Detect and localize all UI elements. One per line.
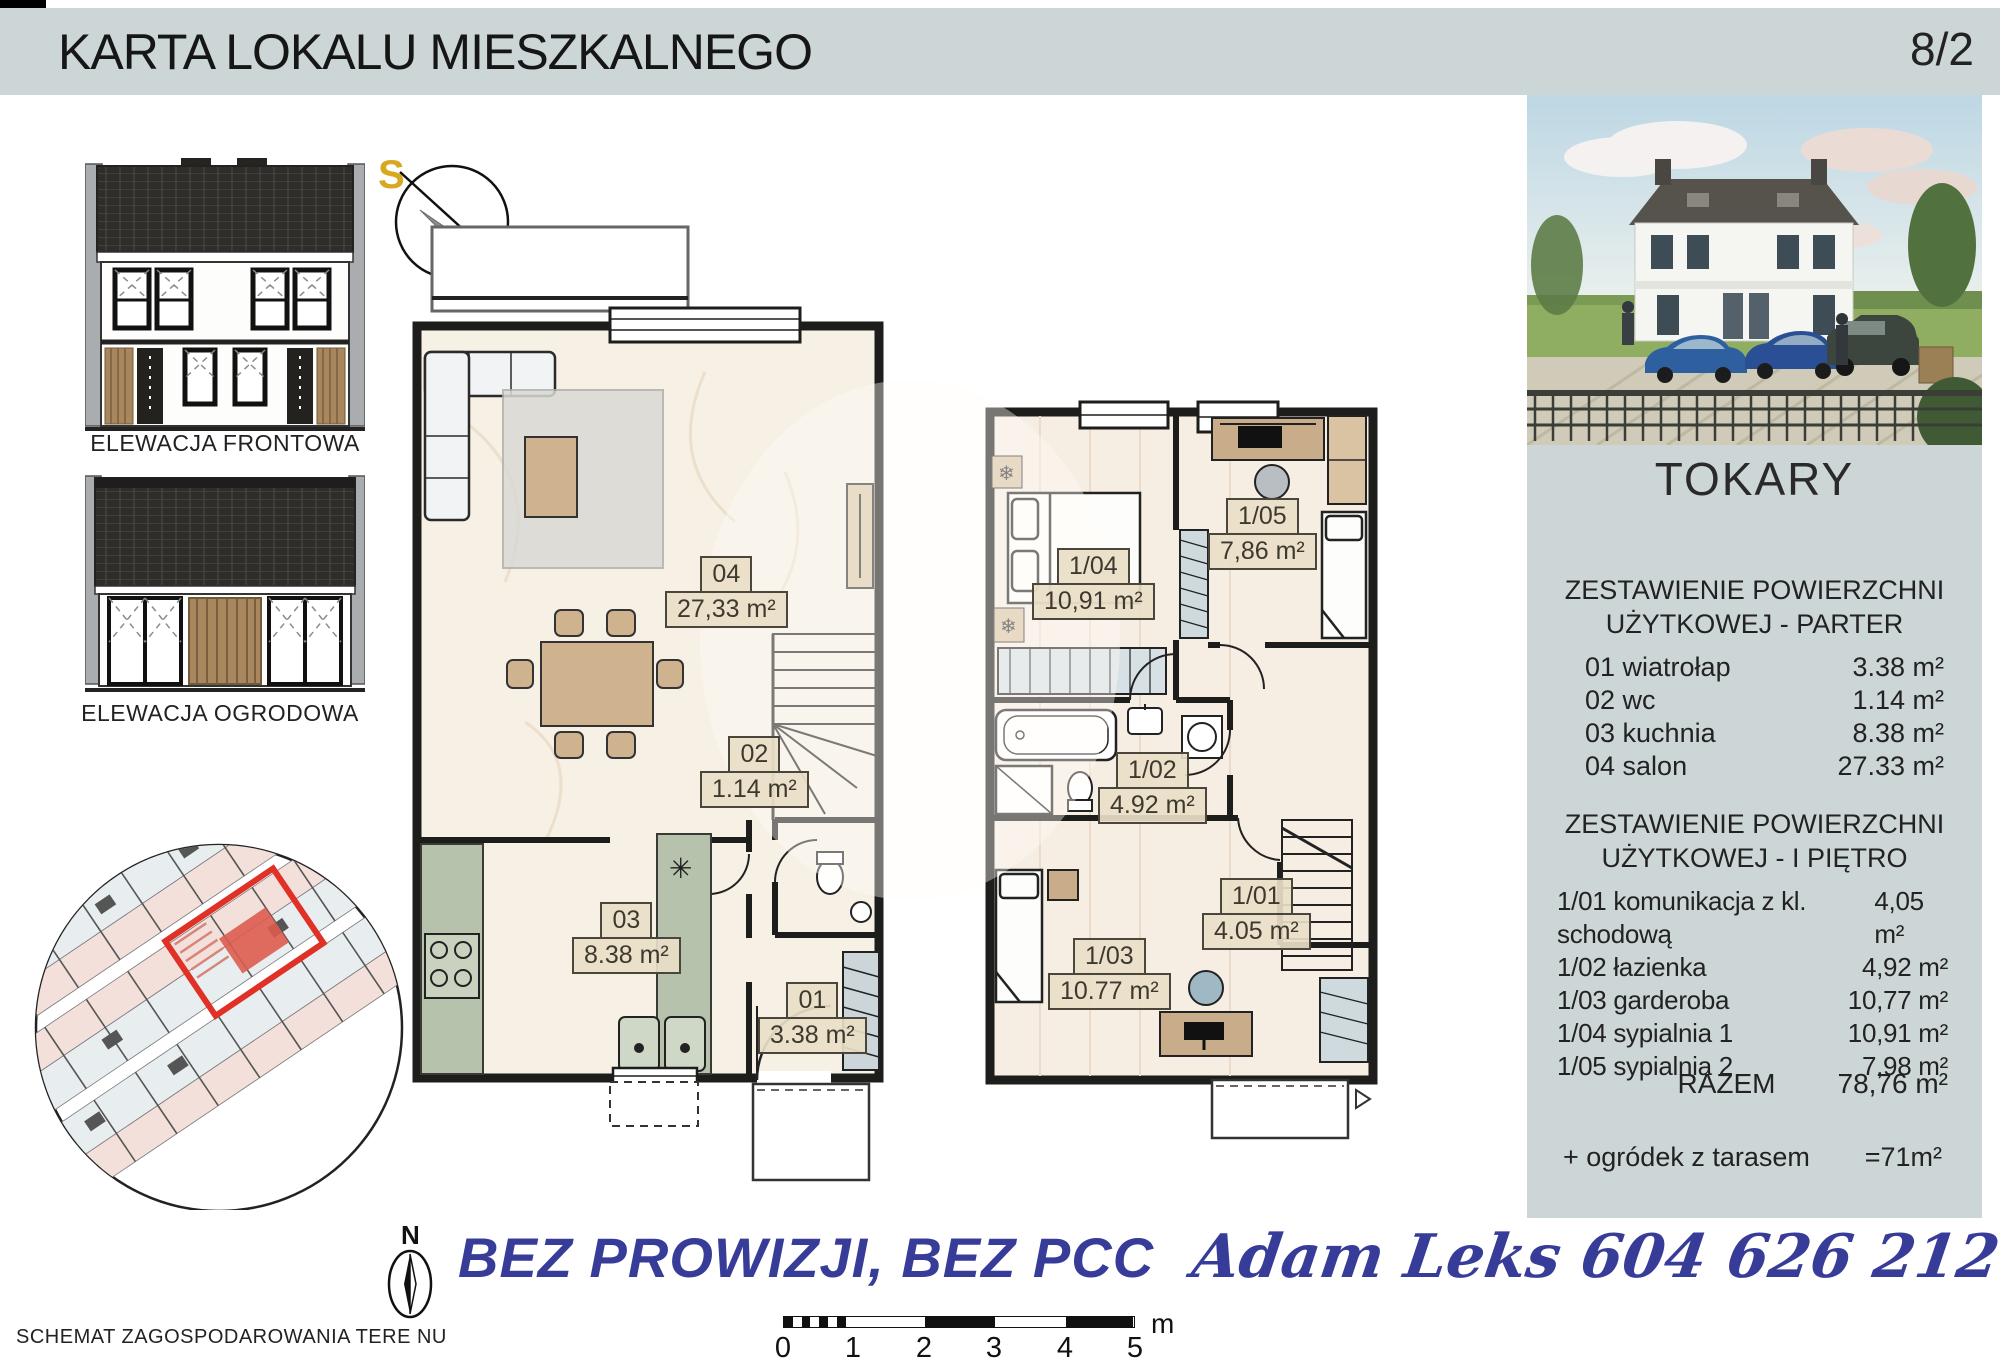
scale-bar: 0 1 2 3 4 5 m bbox=[783, 1316, 1203, 1358]
bath-sink bbox=[1128, 708, 1162, 734]
page-number: 8/2 bbox=[1910, 22, 1974, 76]
wc-basin bbox=[851, 902, 871, 922]
pietro-table-heading: ZESTAWIENIE POWIERZCHNI UŻYTKOWEJ - I PI… bbox=[1527, 807, 1982, 875]
table-row: 1/03 garderoba 10,77 m² bbox=[1527, 984, 1982, 1017]
room-label-kuchnia: 03 8.38 m² bbox=[572, 902, 681, 974]
tree bbox=[1908, 183, 1976, 307]
table-row: 02 wc 1.14 m² bbox=[1527, 684, 1982, 717]
room-label-wiatrolap: 01 3.38 m² bbox=[758, 982, 867, 1054]
small-north-compass: N bbox=[383, 1222, 439, 1322]
table-row: 03 kuchnia 8.38 m² bbox=[1527, 717, 1982, 750]
table-row: 1/02 łazienka 4,92 m² bbox=[1527, 951, 1982, 984]
desk-chair-2 bbox=[1189, 971, 1223, 1005]
svg-text:❄: ❄ bbox=[998, 463, 1015, 485]
toilet bbox=[817, 860, 843, 894]
nightstand bbox=[1048, 870, 1078, 900]
table-row: 01 wiatrołap 3.38 m² bbox=[1527, 651, 1982, 684]
scale-tick: 4 bbox=[1050, 1332, 1080, 1358]
house-rendering-photo bbox=[1527, 95, 1982, 445]
room-label-salon: 04 27,33 m² bbox=[665, 556, 788, 628]
agent-contact-text: Adam Leks 604 626 212 bbox=[1188, 1222, 2000, 1292]
table-row: 1/01 komunikacja z kl. schodową 4,05 m² bbox=[1527, 885, 1982, 951]
page-title: KARTA LOKALU MIESZKALNEGO bbox=[58, 23, 812, 81]
scale-bar-segments bbox=[783, 1316, 1135, 1328]
kitchen-step bbox=[610, 1082, 698, 1126]
marketing-line: BEZ PROWIZJI, BEZ PCC Adam Leks 604 626 … bbox=[458, 1222, 1998, 1292]
garden-row: + ogródek z tarasem =71m² bbox=[1527, 1142, 1982, 1173]
terrace bbox=[1212, 1080, 1348, 1138]
garden-glazing bbox=[109, 598, 341, 684]
table-row: 04 salon 27.33 m² bbox=[1527, 750, 1982, 783]
siteplan-caption: SCHEMAT ZAGOSPODAROWANIA TERE NU bbox=[16, 1326, 447, 1349]
scale-tick: 3 bbox=[979, 1332, 1009, 1358]
scale-tick: 0 bbox=[768, 1332, 798, 1358]
room-label-lazienka: 1/02 4.92 m² bbox=[1098, 752, 1207, 824]
north-label: N bbox=[401, 1222, 420, 1250]
person-2 bbox=[1836, 313, 1848, 365]
stove bbox=[425, 934, 479, 998]
table-row: 1/04 sypialnia 1 10,91 m² bbox=[1527, 1017, 1982, 1050]
single-bed-2 bbox=[996, 870, 1042, 1002]
garden-elevation-label: ELEWACJA OGRODOWA bbox=[80, 700, 360, 727]
parter-table-heading: ZESTAWIENIE POWIERZCHNI UŻYTKOWEJ - PART… bbox=[1527, 573, 1982, 641]
wood-box bbox=[1919, 347, 1953, 383]
pietro-table: 1/01 komunikacja z kl. schodową 4,05 m² … bbox=[1527, 885, 1982, 1083]
house bbox=[1629, 159, 1859, 341]
front-elevation-drawing bbox=[85, 150, 365, 435]
compass-south-label: S bbox=[378, 153, 405, 197]
room-label-sypialnia2: 1/05 7,86 m² bbox=[1208, 498, 1317, 570]
project-name: TOKARY bbox=[1527, 452, 1982, 506]
tree bbox=[1531, 215, 1583, 315]
entry-terrace bbox=[753, 1084, 869, 1180]
north-marker bbox=[1356, 1090, 1370, 1108]
desk-chair bbox=[1255, 465, 1289, 499]
scale-tick: 1 bbox=[838, 1332, 868, 1358]
single-bed bbox=[1322, 512, 1366, 638]
garden-elevation-drawing bbox=[85, 468, 365, 696]
room-label-garderoba: 1/03 10.77 m² bbox=[1048, 938, 1171, 1010]
person bbox=[1622, 301, 1634, 345]
parter-table: 01 wiatrołap 3.38 m² 02 wc 1.14 m² 03 ku… bbox=[1527, 651, 1982, 783]
site-plan-map bbox=[25, 838, 415, 1210]
scale-tick: 5 bbox=[1120, 1332, 1150, 1358]
coffee-table bbox=[525, 437, 577, 517]
header-band: KARTA LOKALU MIESZKALNEGO 8/2 bbox=[0, 8, 2000, 95]
front-elevation-label: ELEWACJA FRONTOWA bbox=[85, 430, 365, 457]
residential-unit-card: KARTA LOKALU MIESZKALNEGO 8/2 bbox=[0, 0, 2000, 1358]
svg-text:❄: ❄ bbox=[1000, 616, 1017, 638]
slogan-text: BEZ PROWIZJI, BEZ PCC bbox=[458, 1226, 1154, 1289]
room-label-wc: 02 1.14 m² bbox=[700, 736, 809, 808]
scale-tick: 2 bbox=[909, 1332, 939, 1358]
vent-icon: ✳ bbox=[669, 853, 692, 884]
scale-unit: m bbox=[1151, 1308, 1174, 1340]
sidebar-panel: TOKARY ZESTAWIENIE POWIERZCHNI UŻYTKOWEJ… bbox=[1527, 95, 1982, 1218]
room-label-sypialnia1: 1/04 10,91 m² bbox=[1032, 548, 1155, 620]
room-label-komunikacja: 1/01 4.05 m² bbox=[1202, 878, 1311, 950]
hall-wardrobe bbox=[1320, 978, 1368, 1062]
total-row: RAZEM 78,76 m² bbox=[1527, 1068, 1982, 1100]
